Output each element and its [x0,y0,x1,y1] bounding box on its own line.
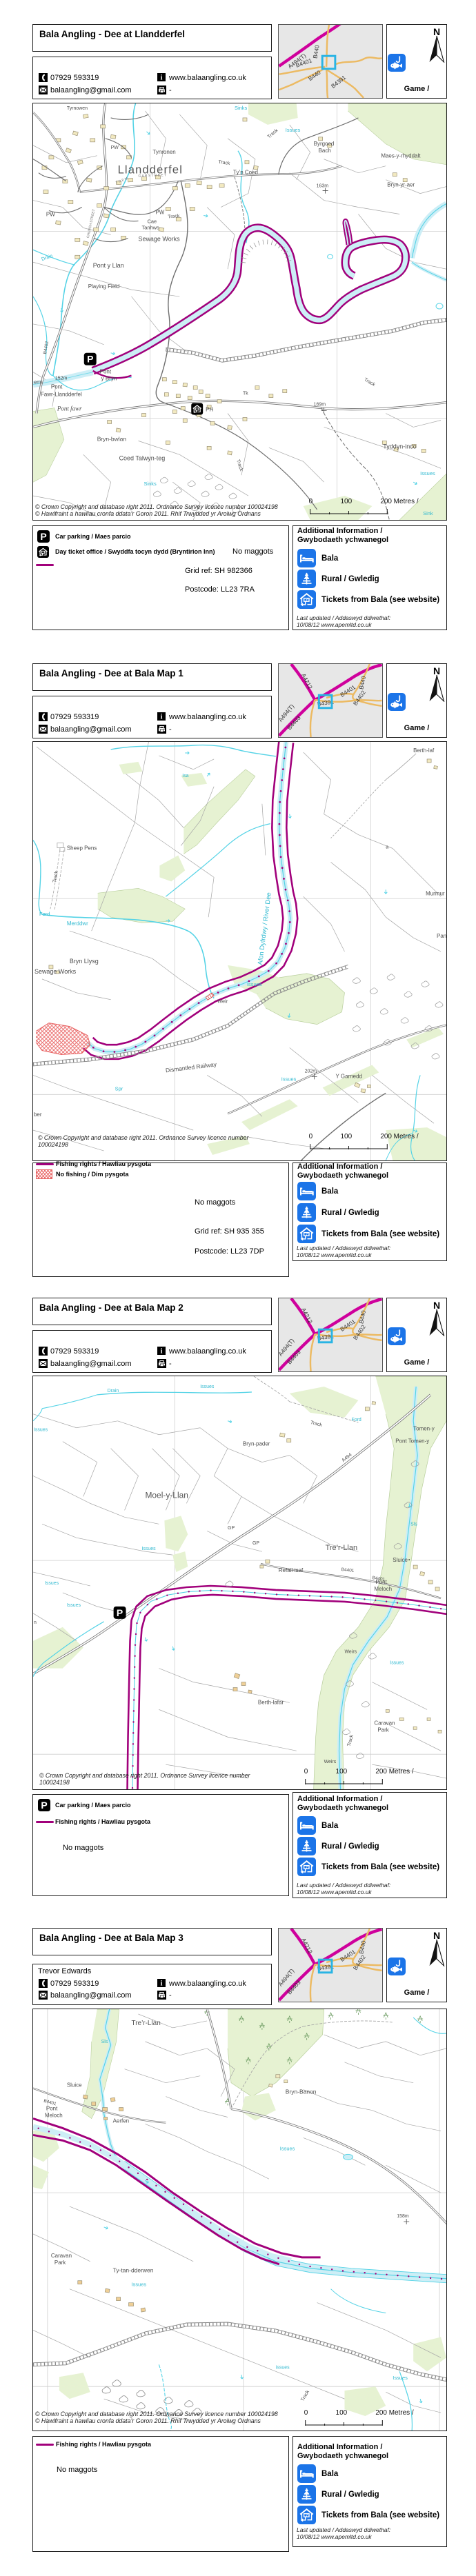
svg-text:Tomen-y: Tomen-y [413,1426,435,1432]
svg-text:0: 0 [304,1768,308,1775]
svg-text:Refail-isaf: Refail-isaf [279,1567,304,1573]
svg-text:100: 100 [341,1133,353,1140]
svg-text:Issues: Issues [67,1603,81,1608]
svg-text:Ty’n Coed: Ty’n Coed [233,170,258,176]
svg-text:Sewage Works: Sewage Works [34,968,77,975]
svg-text:Y Garnedd: Y Garnedd [336,1073,362,1079]
svg-text:Issues: Issues [286,127,301,133]
svg-text:Pont ſawr: Pont ſawr [57,405,82,412]
svg-text:Murmur: Murmur [426,890,445,896]
svg-text:Sls: Sls [410,1522,417,1527]
svg-text:Tre’r-Llan: Tre’r-Llan [326,1544,357,1552]
svg-text:Pont y Llan: Pont y Llan [93,262,124,269]
svg-text:GP: GP [228,1526,235,1531]
svg-text:100024198: 100024198 [39,1779,70,1786]
svg-text:n: n [34,1620,37,1625]
svg-text:200 Metres /: 200 Metres / [375,1768,414,1775]
svg-text:Spr: Spr [115,1085,123,1091]
svg-text:Tanhws: Tanhws [141,224,159,230]
svg-text:PW: PW [46,211,55,217]
svg-text:Sls: Sls [101,2040,108,2044]
svg-text:Issues: Issues [141,1547,156,1551]
svg-text:163m: 163m [317,184,329,189]
svg-text:Berth-laf: Berth-laf [413,747,435,754]
svg-text:Byrgoed: Byrgoed [314,141,335,147]
svg-text:Pan: Pan [437,933,446,939]
svg-text:?: ? [306,598,308,603]
svg-text:Park: Park [377,1727,388,1733]
svg-text:© Crown Copyright and database: © Crown Copyright and database right 201… [35,503,278,510]
svg-text:PH: PH [206,407,213,413]
svg-text:PW: PW [155,209,164,215]
svg-text:© Hawlfraint a hawliau cronfa: © Hawlfraint a hawliau cronfa ddata’r Go… [35,510,261,517]
svg-text:ber: ber [34,1111,42,1118]
svg-text:Tyrnowen: Tyrnowen [67,106,88,111]
svg-text:Weir: Weir [217,998,228,1005]
svg-text:152m: 152m [55,376,68,381]
svg-text:GP: GP [252,1541,259,1546]
svg-text:© Hawlfraint a hawliau cronfa: © Hawlfraint a hawliau cronfa ddata’r Go… [35,2417,261,2424]
svg-text:0: 0 [304,2409,308,2417]
svg-text:Bryn-yr-aer: Bryn-yr-aer [387,182,415,188]
svg-text:Merddwr: Merddwr [67,920,88,927]
svg-text:Sink: Sink [423,510,433,516]
svg-text:Coed Talwyn-teg: Coed Talwyn-teg [119,454,166,461]
svg-text:i: i [161,1980,163,1987]
svg-text:?: ? [306,1233,308,1237]
svg-text:200 Metres /: 200 Metres / [380,498,419,505]
svg-text:200 Metres /: 200 Metres / [375,2409,414,2417]
svg-text:Pont: Pont [51,384,63,390]
svg-text:0: 0 [309,1133,313,1140]
svg-text:Pont: Pont [375,1579,387,1585]
svg-text:P: P [40,531,46,542]
svg-text:?: ? [306,2514,308,2518]
svg-text:Meloch: Meloch [45,2112,63,2118]
svg-text:P: P [87,354,93,365]
svg-text:Meloch: Meloch [374,1586,392,1592]
svg-text:Bach: Bach [319,148,331,154]
svg-text:100: 100 [341,498,353,505]
svg-text:Bryn Llysg: Bryn Llysg [70,958,99,965]
svg-text:Issues: Issues [281,1076,297,1082]
svg-text:Caravan: Caravan [374,1720,395,1726]
svg-text:Issues: Issues [247,981,262,987]
svg-text:Issues: Issues [34,1428,48,1433]
svg-text:Pont Tomen-y: Pont Tomen-y [395,1438,429,1445]
svg-text:158m: 158m [397,2214,409,2219]
svg-text:Sluice: Sluice [67,2082,82,2089]
svg-text:Issues: Issues [393,2375,408,2381]
svg-text:202m: 202m [305,1069,317,1074]
svg-text:Sluice: Sluice [393,1557,408,1563]
svg-text:a: a [386,845,388,849]
svg-text:Bryn-Banon: Bryn-Banon [286,2089,317,2095]
svg-text:P: P [117,1607,123,1618]
svg-text:Sinks: Sinks [143,481,157,487]
svg-text:Ford: Ford [351,1418,361,1422]
svg-text:© Crown Copyright and database: © Crown Copyright and database right 201… [38,1134,250,1141]
svg-text:Tre’r-Llan: Tre’r-Llan [132,2020,161,2027]
svg-text:i: i [161,714,163,721]
svg-text:Weirs: Weirs [324,1760,337,1764]
svg-text:issues: issues [276,2365,290,2370]
svg-text:Sinks: Sinks [235,105,248,111]
svg-text:Weirs: Weirs [344,1650,357,1655]
svg-text:eml: eml [34,379,42,385]
svg-text:Aerfen: Aerfen [113,2117,129,2124]
svg-text:Drain: Drain [108,1389,119,1393]
svg-text:Fawr-Llandderfel: Fawr-Llandderfel [41,392,82,398]
svg-text:Bryn-pader: Bryn-pader [243,1441,270,1447]
svg-text:200 Metres /: 200 Metres / [380,1133,419,1140]
svg-text:Tk: Tk [243,392,248,396]
svg-text:Issues: Issues [420,470,435,476]
svg-text:Tyddyn-inco: Tyddyn-inco [383,443,416,450]
svg-text:0: 0 [309,498,313,505]
svg-text:Issues: Issues [280,2145,295,2151]
svg-text:i: i [161,1348,163,1355]
svg-text:Bryn-bwlan: Bryn-bwlan [97,435,127,442]
svg-text:PW: PW [111,145,119,150]
svg-text:P: P [41,1800,47,1811]
svg-text:Issues: Issues [200,1385,215,1389]
svg-text:Tynronen: Tynronen [152,149,175,155]
svg-text:Ford: Ford [39,911,50,917]
svg-text:Sewage Works: Sewage Works [138,235,180,242]
svg-text:Caravan: Caravan [51,2253,72,2259]
svg-text:100: 100 [336,2409,348,2417]
svg-text:i: i [161,74,163,81]
svg-text:Playing Field: Playing Field [88,283,120,290]
svg-text:Maes-y-rhyddalt: Maes-y-rhyddalt [381,153,421,159]
svg-text:Pont: Pont [46,2106,58,2112]
svg-text:Isa: Isa [182,774,188,778]
svg-text:Ty-tan-dderwen: Ty-tan-dderwen [113,2267,154,2274]
svg-text:Issues: Issues [132,2282,147,2288]
svg-text:Sheep Pens: Sheep Pens [67,845,97,851]
svg-text:169m: 169m [314,403,326,407]
svg-text:Park: Park [54,2260,66,2266]
svg-text:y Bryn: y Bryn [101,376,117,382]
svg-text:100024198: 100024198 [38,1141,68,1148]
svg-text:© Crown Copyright and database: © Crown Copyright and database right 201… [35,2411,278,2417]
svg-text:100: 100 [336,1768,348,1775]
svg-text:?: ? [306,1866,308,1870]
svg-text:Berth-lafar: Berth-lafar [258,1699,284,1705]
svg-text:© Crown Copyright and database: © Crown Copyright and database right 201… [39,1772,251,1779]
svg-text:Pont: Pont [100,369,112,375]
svg-text:Issues: Issues [45,1581,59,1586]
svg-text:Issues: Issues [390,1661,404,1666]
svg-text:Cae: Cae [147,218,157,224]
svg-text:Moel-y-Llan: Moel-y-Llan [145,1490,188,1500]
